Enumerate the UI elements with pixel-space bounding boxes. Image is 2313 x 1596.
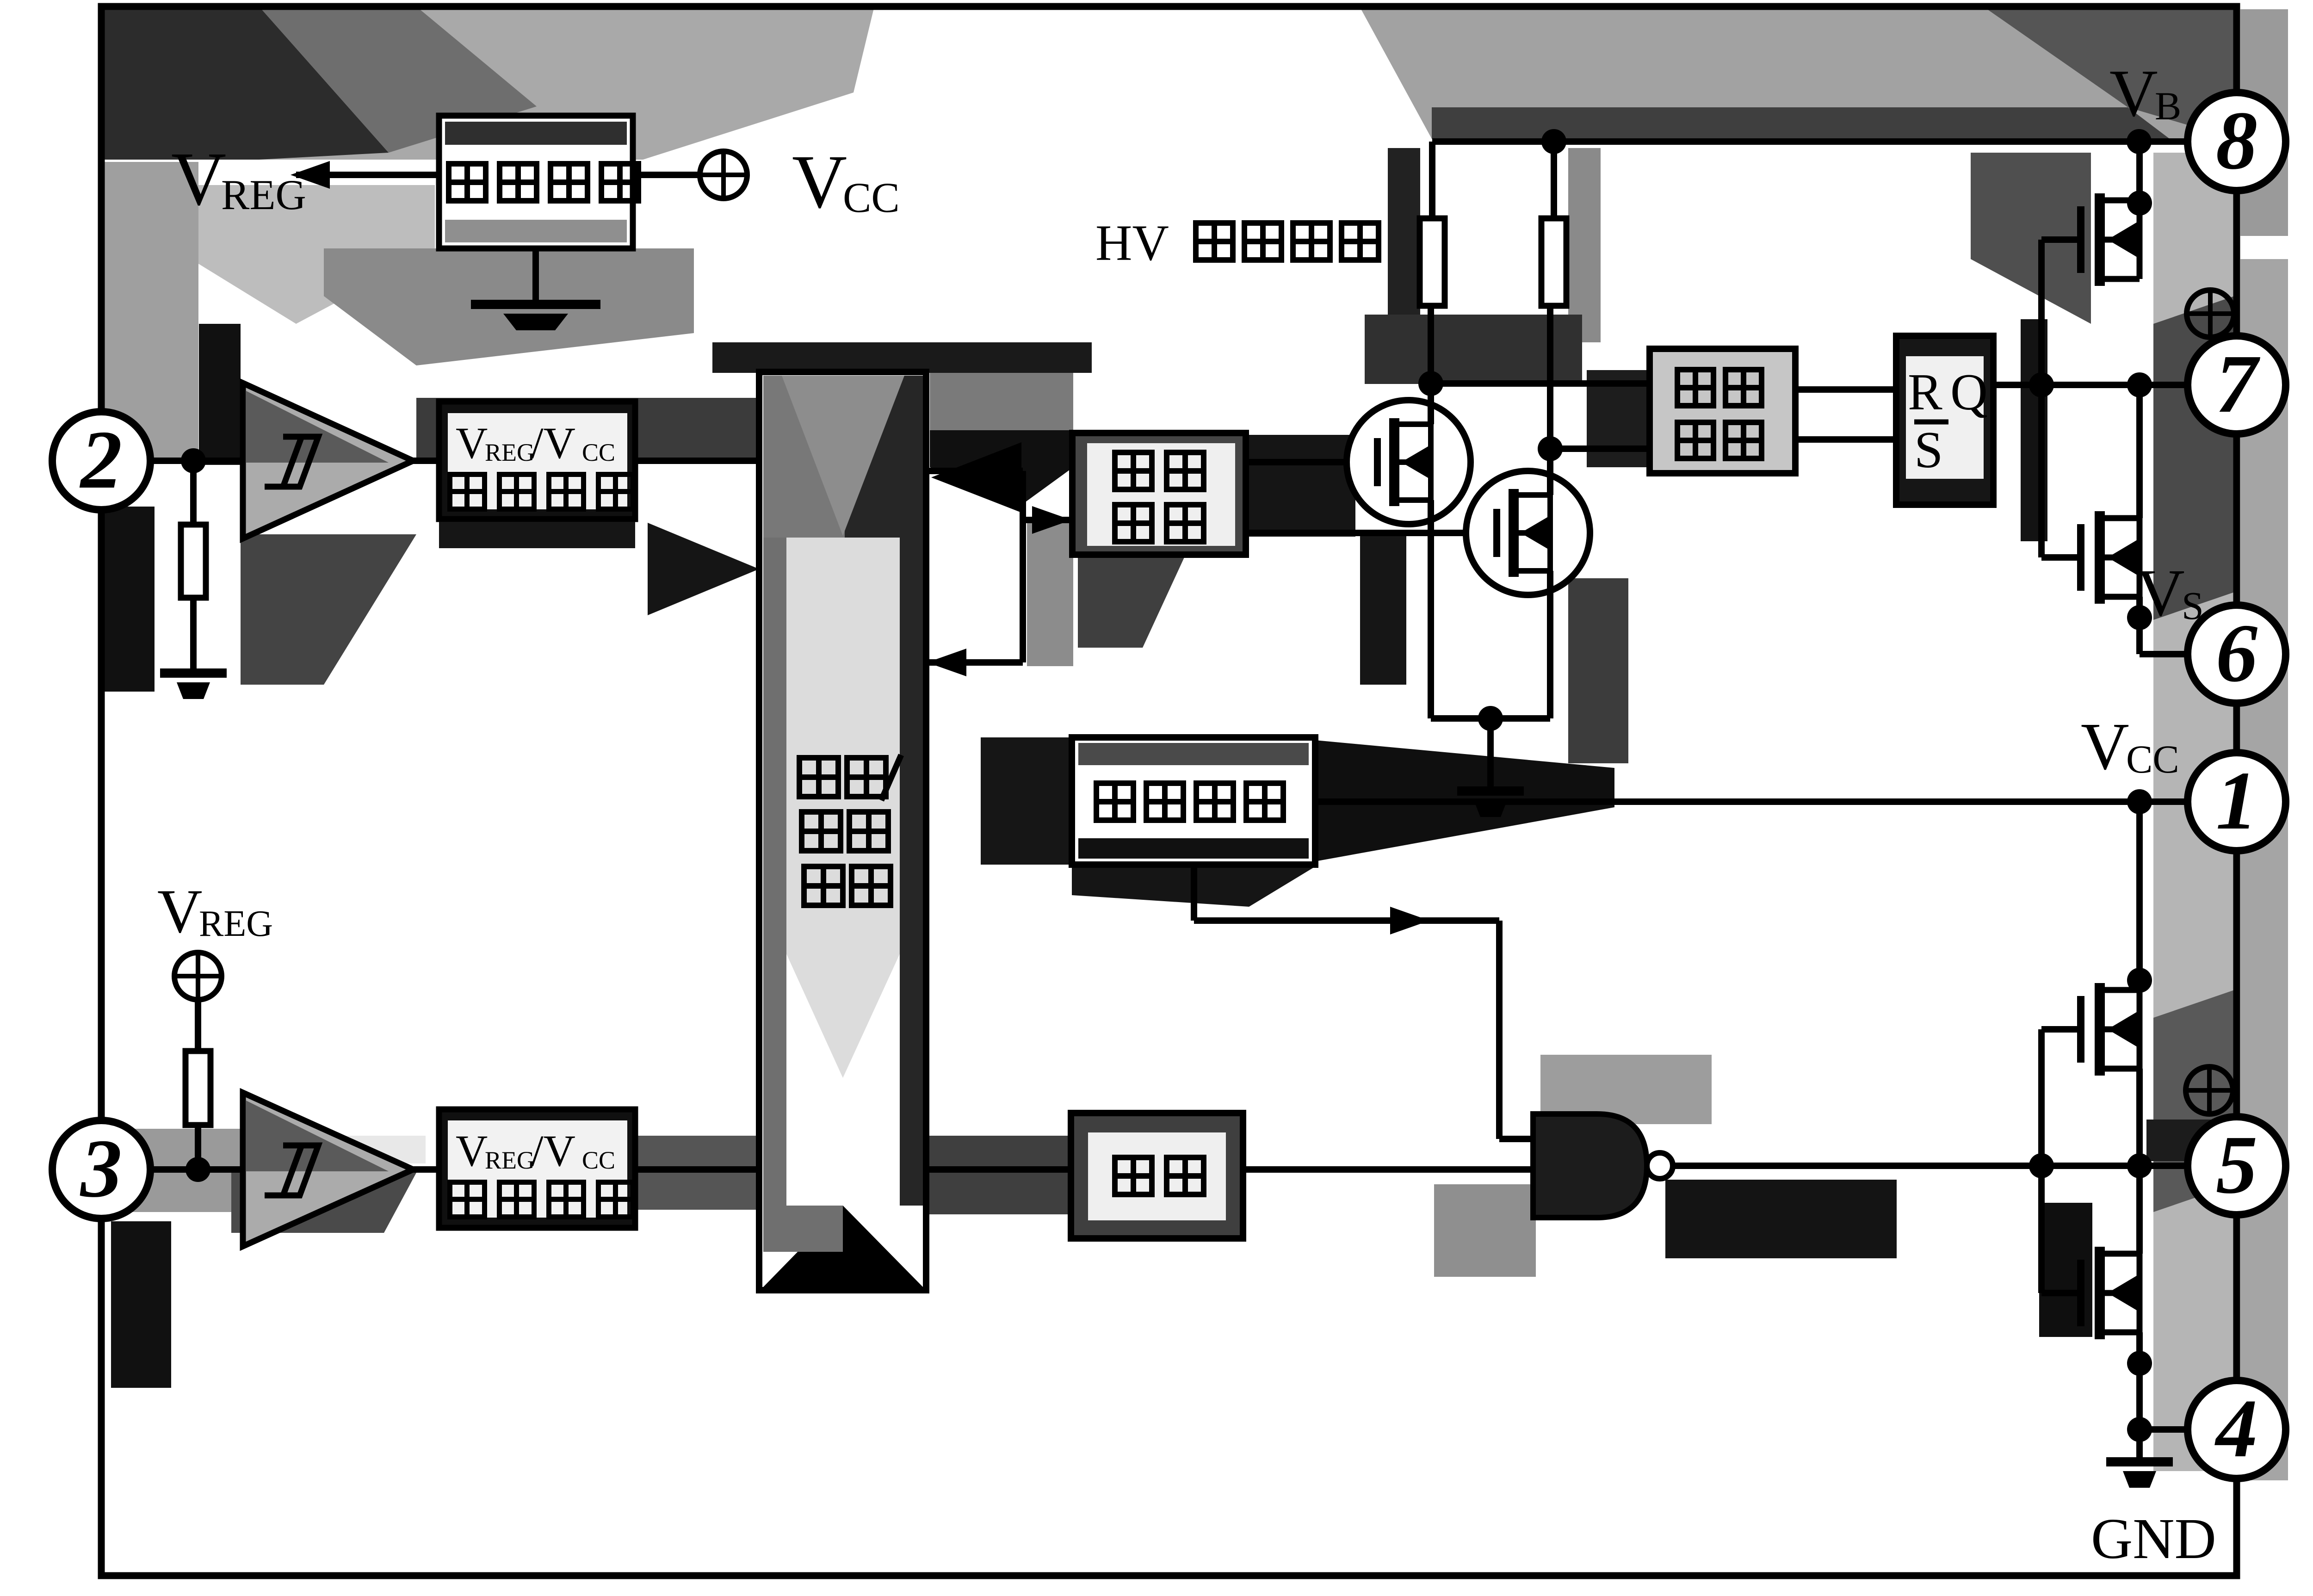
svg-text:7: 7 xyxy=(2216,338,2260,430)
svg-text:V: V xyxy=(2136,556,2185,630)
svg-text:REG: REG xyxy=(221,171,306,218)
svg-text:1: 1 xyxy=(2216,755,2257,847)
svg-text:V: V xyxy=(792,139,847,224)
svg-text:V: V xyxy=(2109,56,2158,130)
svg-text:V: V xyxy=(171,136,226,221)
svg-text:V: V xyxy=(456,1126,488,1175)
svg-text:CC: CC xyxy=(2126,737,2179,781)
svg-text:S: S xyxy=(1914,421,1943,479)
svg-text:/V: /V xyxy=(531,418,575,468)
svg-text:4: 4 xyxy=(2214,1382,2257,1474)
svg-text:GND: GND xyxy=(2091,1507,2216,1571)
svg-text:2: 2 xyxy=(79,414,122,506)
svg-text:CC: CC xyxy=(843,174,900,221)
svg-text:HV: HV xyxy=(1095,215,1169,271)
svg-text:CC: CC xyxy=(582,1146,615,1174)
svg-text:V: V xyxy=(157,877,203,946)
svg-text:V: V xyxy=(2081,710,2129,784)
svg-text:Q: Q xyxy=(1950,364,1988,421)
svg-text:REG: REG xyxy=(199,903,273,944)
svg-text:3: 3 xyxy=(80,1122,122,1214)
svg-text:REG: REG xyxy=(485,1146,535,1174)
svg-text:V: V xyxy=(456,418,488,468)
svg-text:R: R xyxy=(1908,364,1942,421)
svg-text:B: B xyxy=(2155,84,2181,128)
svg-text:REG: REG xyxy=(485,439,535,466)
svg-text:6: 6 xyxy=(2216,607,2257,699)
svg-text:/V: /V xyxy=(531,1126,575,1175)
svg-text:CC: CC xyxy=(582,439,615,466)
svg-text:5: 5 xyxy=(2216,1119,2257,1211)
svg-text:8: 8 xyxy=(2216,94,2257,186)
